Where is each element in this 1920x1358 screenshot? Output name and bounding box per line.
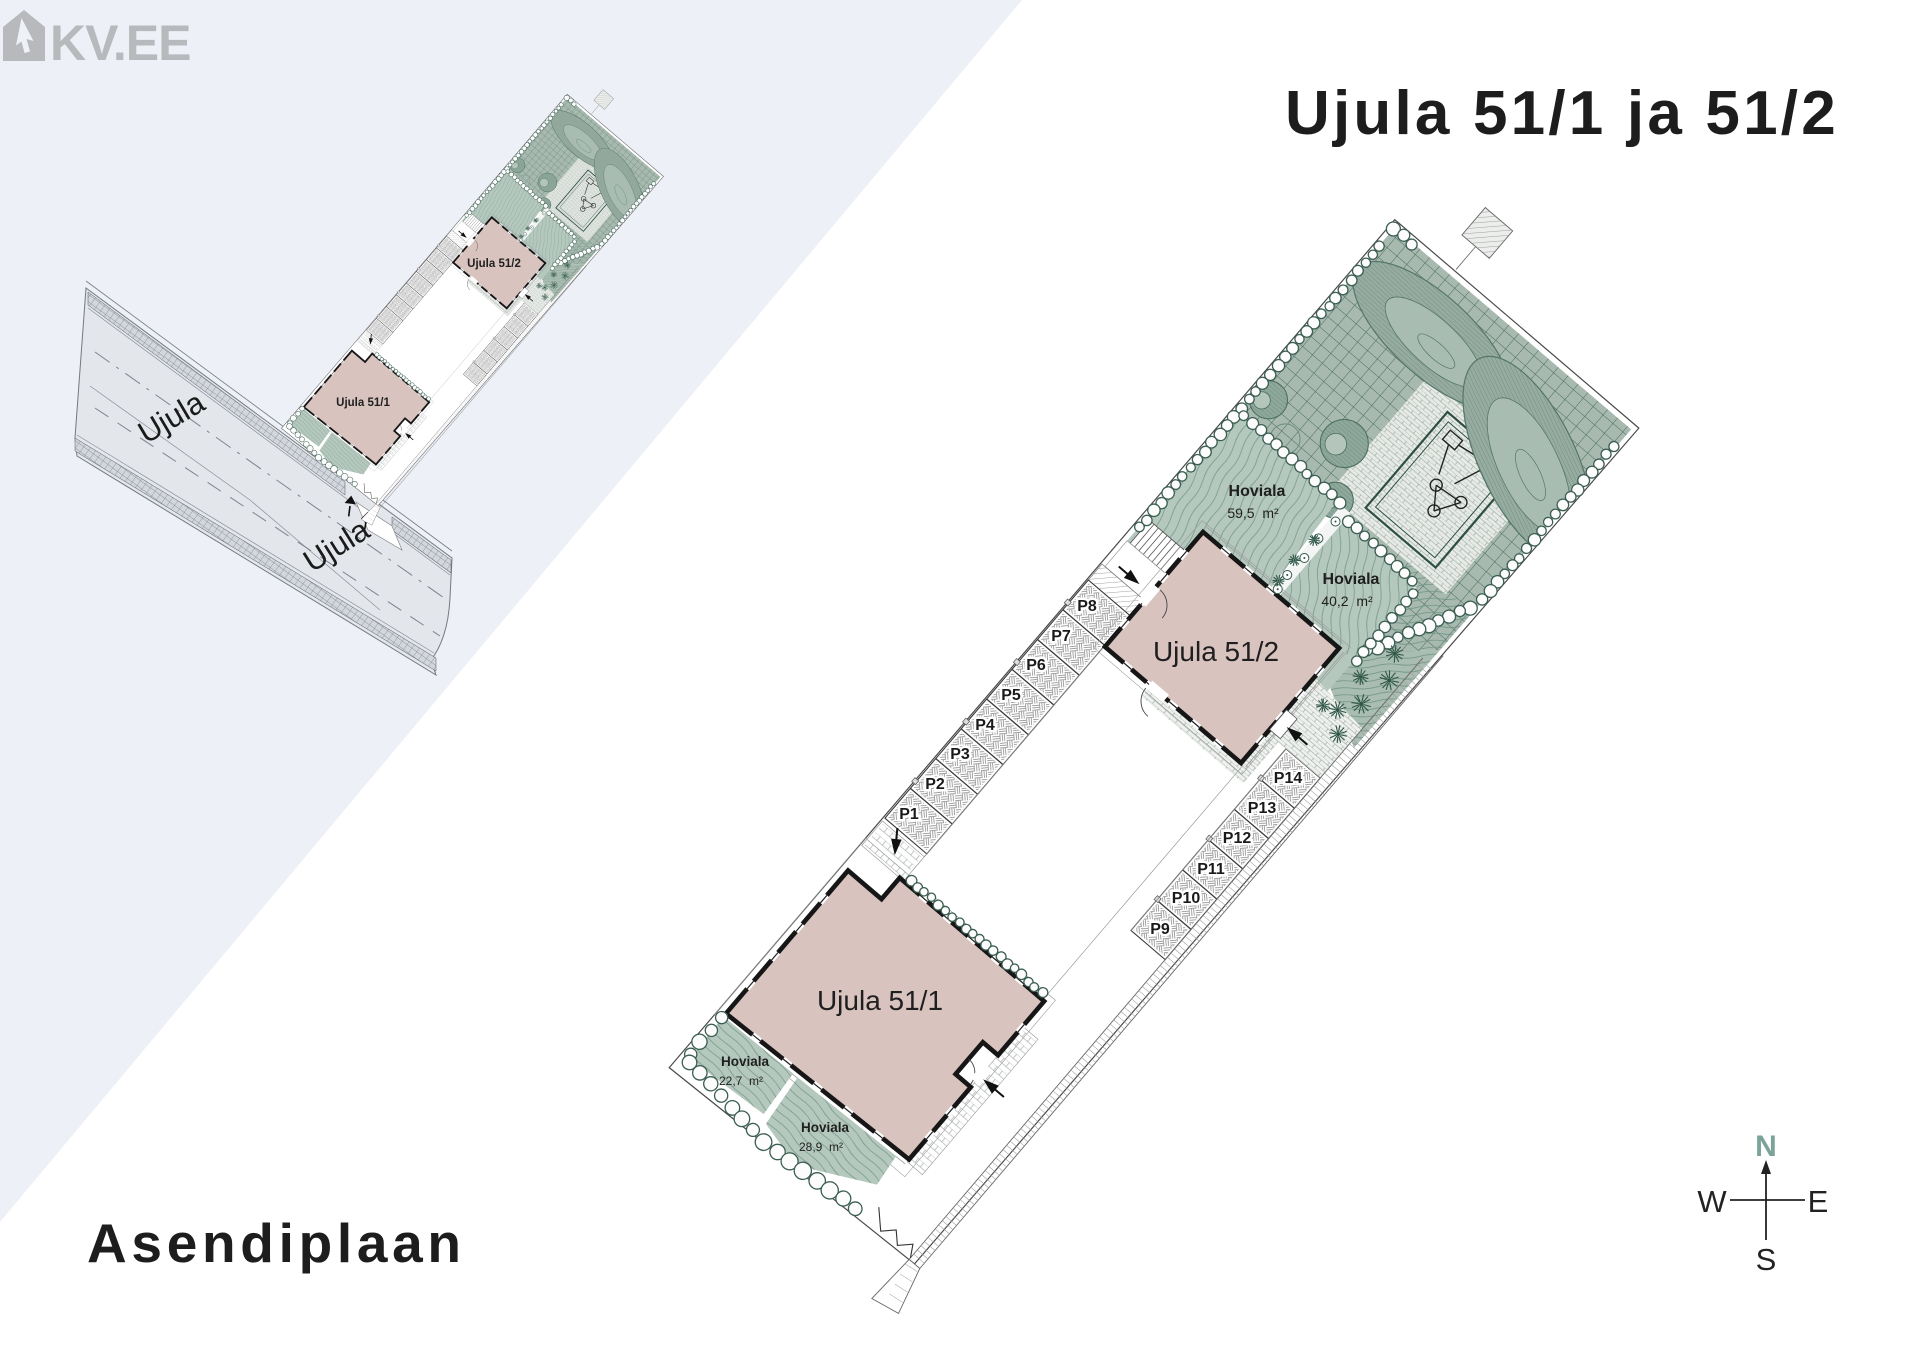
svg-text:Hoviala: Hoviala <box>721 1054 770 1069</box>
svg-text:N: N <box>1755 1130 1777 1163</box>
svg-text:W: W <box>1697 1184 1727 1219</box>
svg-text:Ujula 51/2: Ujula 51/2 <box>467 258 521 270</box>
svg-text:P8: P8 <box>1077 598 1097 615</box>
svg-text:P7: P7 <box>1051 628 1071 645</box>
svg-text:KV.EE: KV.EE <box>50 15 190 71</box>
svg-text:Hoviala: Hoviala <box>1323 571 1380 588</box>
svg-text:P10: P10 <box>1172 890 1201 907</box>
svg-text:P3: P3 <box>950 746 970 763</box>
svg-text:28,9 m²: 28,9 m² <box>799 1140 843 1154</box>
svg-text:Asendiplaan: Asendiplaan <box>87 1212 466 1274</box>
svg-text:P6: P6 <box>1026 657 1046 674</box>
svg-text:22,7 m²: 22,7 m² <box>719 1074 763 1088</box>
svg-text:59,5 m²: 59,5 m² <box>1227 505 1279 521</box>
svg-text:Ujula 51/1 ja 51/2: Ujula 51/1 ja 51/2 <box>1285 79 1839 148</box>
svg-text:P4: P4 <box>975 717 995 734</box>
svg-text:40,2 m²: 40,2 m² <box>1321 593 1373 609</box>
svg-text:E: E <box>1808 1184 1829 1219</box>
svg-text:P11: P11 <box>1197 861 1225 878</box>
svg-text:Hoviala: Hoviala <box>1229 483 1286 500</box>
svg-text:P1: P1 <box>899 806 919 823</box>
svg-text:P2: P2 <box>925 776 945 793</box>
svg-text:Ujula 51/1: Ujula 51/1 <box>817 985 943 1016</box>
svg-text:P12: P12 <box>1223 830 1252 847</box>
svg-text:Hoviala: Hoviala <box>801 1120 850 1135</box>
svg-text:Ujula 51/2: Ujula 51/2 <box>1153 636 1279 667</box>
svg-text:S: S <box>1756 1242 1777 1277</box>
svg-text:P13: P13 <box>1248 800 1277 817</box>
svg-text:P5: P5 <box>1001 687 1021 704</box>
svg-text:Ujula 51/1: Ujula 51/1 <box>336 397 390 409</box>
svg-text:P14: P14 <box>1274 770 1303 787</box>
svg-text:P9: P9 <box>1150 921 1170 938</box>
